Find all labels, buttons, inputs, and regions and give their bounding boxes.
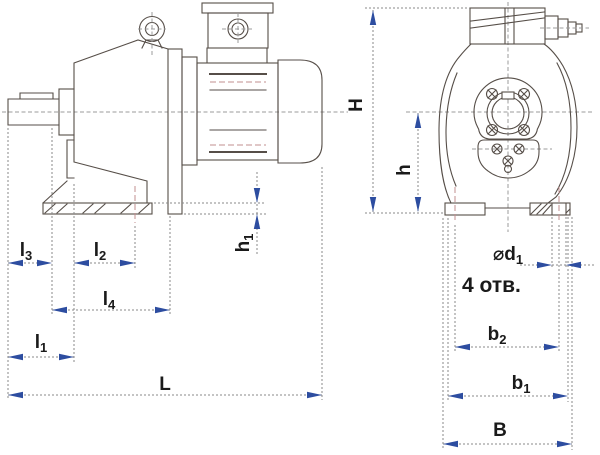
dim-label-H: H: [346, 98, 367, 112]
dim-label-l3: l3: [20, 240, 33, 263]
dimension-d1: [520, 262, 595, 268]
dimension-H: [370, 10, 376, 212]
base-hatching: [45, 204, 149, 213]
dim-label-h: h: [394, 164, 415, 176]
dim-label-l4: l4: [103, 289, 116, 312]
dimension-h1: [254, 172, 260, 256]
drawing-canvas: l3 l2 l4 l1 L h1 H h ⌀d1 4 отв. b2 b1 B: [0, 0, 600, 455]
dim-label-l2: l2: [94, 240, 107, 263]
motor-fins: [210, 74, 266, 152]
rear-plate: [168, 49, 182, 214]
keyway: [502, 92, 514, 99]
motor-flange: [182, 57, 197, 165]
lifting-eye: [138, 12, 166, 56]
lower-bearing-boss: [67, 140, 74, 178]
dim-label-b1: b1: [512, 373, 531, 396]
electric-motor: [182, 57, 322, 165]
foot-gusset: [43, 181, 67, 203]
dimension-labels: l3 l2 l4 l1 L h1 H h ⌀d1 4 отв. b2 b1 B: [20, 98, 531, 441]
dimensions: [8, 8, 595, 450]
dim-label-B: B: [493, 420, 507, 441]
terminal-box-side: [202, 3, 273, 63]
output-shaft: [8, 93, 59, 125]
side-view: [2, 3, 348, 223]
dimension-b1: [448, 393, 568, 399]
terminal-box-front: [470, 8, 589, 44]
holes-note: 4 отв.: [462, 274, 521, 297]
left-foot: [445, 203, 485, 215]
shaft-key: [20, 93, 53, 99]
base-plate: [43, 181, 152, 223]
gearbox-housing: [67, 40, 182, 214]
dim-label-h1: h1: [233, 234, 256, 253]
dimension-B: [443, 441, 572, 447]
motor-hidden-lines: [210, 82, 266, 145]
dim-label-L: L: [159, 374, 171, 395]
cable-gland: [540, 16, 589, 39]
gear-motor-dimension-drawing: l3 l2 l4 l1 L h1 H h ⌀d1 4 отв. b2 b1 B: [0, 0, 600, 455]
dim-label-d1: ⌀d1: [493, 244, 523, 267]
right-foot-hatching: [531, 204, 570, 214]
front-view: [406, 2, 592, 232]
dimension-b2: [455, 344, 559, 350]
dim-label-l1: l1: [35, 332, 48, 355]
dimension-h: [415, 113, 421, 212]
dim-label-b2: b2: [488, 324, 507, 347]
